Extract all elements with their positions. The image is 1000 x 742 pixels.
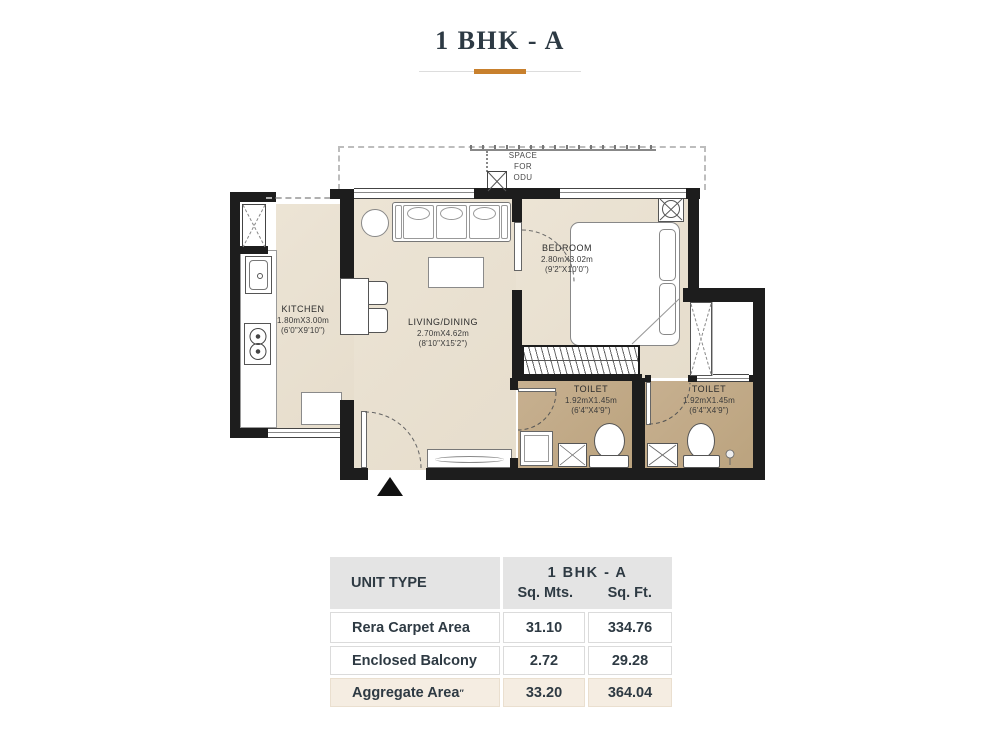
page-title: 1 BHK - A bbox=[0, 26, 1000, 56]
entry-arrow-marker bbox=[377, 477, 403, 496]
odu-label: SPACE FOR ODU bbox=[509, 151, 538, 183]
kitchen-dim-imperial: (6'0"X9'10") bbox=[277, 326, 329, 336]
living-dim-imperial: (8'10"X15'2") bbox=[408, 339, 478, 349]
living-name: LIVING/DINING bbox=[408, 317, 478, 329]
row-sqft-value: 364.04 bbox=[588, 678, 672, 707]
toilet2-dim-metric: 1.92mX1.45m bbox=[683, 396, 735, 406]
wall-segment bbox=[645, 375, 651, 382]
wall-segment bbox=[512, 196, 522, 222]
sofa-pillow bbox=[473, 207, 496, 220]
toilet2-basin bbox=[647, 443, 678, 467]
sofa-arm-right bbox=[501, 205, 508, 239]
wall-segment bbox=[230, 428, 270, 438]
sofa-cushion bbox=[403, 205, 434, 239]
row-label-text: Rera Carpet Area bbox=[352, 620, 470, 636]
toilet1-shower-tray bbox=[520, 431, 553, 466]
wall-segment bbox=[510, 378, 518, 390]
passage-wardrobe bbox=[690, 302, 712, 376]
tv-console bbox=[427, 449, 512, 468]
wall-segment bbox=[683, 288, 753, 302]
odu-railing bbox=[470, 145, 656, 151]
wall-segment bbox=[510, 458, 518, 470]
toilet2-wc bbox=[687, 423, 715, 459]
row-label-text: Aggregate Area bbox=[352, 685, 459, 701]
unit-type-header: UNIT TYPE bbox=[330, 557, 500, 609]
bed-pillow-1 bbox=[659, 229, 676, 281]
area-table: UNIT TYPE 1 BHK - A Sq. Mts. Sq. Ft. Rer… bbox=[330, 557, 672, 707]
living-window bbox=[354, 188, 474, 199]
wall-segment bbox=[426, 468, 765, 480]
row-sqmts-value: 33.20 bbox=[503, 678, 585, 707]
wall-segment bbox=[230, 192, 240, 438]
row-sqft-value: 29.28 bbox=[588, 646, 672, 675]
row-sqmts-value: 2.72 bbox=[503, 646, 585, 675]
toilet2-dim-imperial: (6'4"X4'9") bbox=[683, 406, 735, 416]
row-label: Aggregate Area″ bbox=[330, 678, 500, 707]
ac-unit-icon bbox=[658, 197, 684, 222]
sofa-arm-left bbox=[395, 205, 402, 239]
wall-segment bbox=[688, 189, 699, 302]
sofa bbox=[392, 202, 511, 242]
wall-segment bbox=[340, 189, 354, 278]
unit-subcolumns: Sq. Mts. Sq. Ft. bbox=[503, 585, 672, 601]
side-table bbox=[361, 209, 389, 237]
toilet2-name: TOILET bbox=[683, 384, 735, 396]
toilet2-label: TOILET 1.92mX1.45m (6'4"X4'9") bbox=[683, 384, 735, 416]
col-header-sqft: Sq. Ft. bbox=[588, 585, 673, 601]
dining-chair-2 bbox=[368, 308, 388, 333]
odu-railing-post bbox=[486, 151, 490, 172]
passage-divider-line bbox=[712, 302, 713, 376]
unit-name: 1 BHK - A bbox=[548, 565, 628, 581]
bedroom-window bbox=[560, 188, 686, 199]
odu-label-line2: FOR bbox=[509, 162, 538, 173]
wall-segment bbox=[340, 468, 368, 480]
toilet1-name: TOILET bbox=[565, 384, 617, 396]
floor-plan-page: 1 BHK - A SPACE FOR ODU bbox=[0, 0, 1000, 742]
entry-door-leaf bbox=[361, 411, 367, 468]
toilet1-dim-metric: 1.92mX1.45m bbox=[565, 396, 617, 406]
wall-segment bbox=[632, 378, 645, 470]
wall-segment bbox=[240, 246, 268, 254]
sofa-cushion bbox=[436, 205, 467, 239]
toilet1-door-leaf bbox=[518, 388, 556, 392]
kitchen-sink bbox=[245, 256, 272, 294]
living-label: LIVING/DINING 2.70mX4.62m (8'10"X15'2") bbox=[408, 317, 478, 349]
dining-chair-1 bbox=[368, 281, 388, 305]
odu-label-line1: SPACE bbox=[509, 151, 538, 162]
open-boundary-dashed bbox=[266, 197, 340, 199]
wall-segment bbox=[753, 288, 765, 480]
refrigerator bbox=[301, 392, 342, 425]
toilet1-label: TOILET 1.92mX1.45m (6'4"X4'9") bbox=[565, 384, 617, 416]
living-dim-metric: 2.70mX4.62m bbox=[408, 329, 478, 339]
toilet1-cistern bbox=[589, 455, 629, 468]
title-divider-accent bbox=[474, 69, 526, 74]
row-label: Enclosed Balcony bbox=[330, 646, 500, 675]
unit-name-header: 1 BHK - A Sq. Mts. Sq. Ft. bbox=[503, 557, 672, 609]
bedroom-dim-imperial: (9'2"X10'0") bbox=[541, 265, 593, 275]
toilet2-door-leaf bbox=[646, 382, 651, 425]
bedroom-dim-metric: 2.80mX3.02m bbox=[541, 255, 593, 265]
col-header-sqmts: Sq. Mts. bbox=[503, 585, 588, 601]
kitchen-label: KITCHEN 1.80mX3.00m (6'0"X9'10") bbox=[277, 304, 329, 336]
bed-pillow-2 bbox=[659, 283, 676, 335]
kitchen-stove bbox=[244, 323, 271, 365]
row-sqft-value: 334.76 bbox=[588, 612, 672, 643]
toilet1-basin bbox=[558, 443, 587, 467]
bedroom-door-leaf bbox=[514, 222, 522, 271]
row-label: Rera Carpet Area bbox=[330, 612, 500, 643]
bedroom-label: BEDROOM 2.80mX3.02m (9'2"X10'0") bbox=[541, 243, 593, 275]
row-label-text: Enclosed Balcony bbox=[352, 653, 477, 669]
bedroom-name: BEDROOM bbox=[541, 243, 593, 255]
dining-table bbox=[340, 278, 369, 335]
kitchen-name: KITCHEN bbox=[277, 304, 329, 316]
kitchen-window bbox=[268, 428, 340, 438]
sofa-pillow bbox=[407, 207, 430, 220]
toilet2-cistern bbox=[683, 455, 720, 468]
odu-label-line3: ODU bbox=[509, 173, 538, 184]
toilet1-wc bbox=[594, 423, 625, 459]
kitchen-dim-metric: 1.80mX3.00m bbox=[277, 316, 329, 326]
coffee-table bbox=[428, 257, 484, 288]
wall-segment bbox=[512, 290, 522, 378]
sofa-pillow bbox=[440, 207, 463, 220]
row-label-suffix: ″ bbox=[459, 688, 463, 698]
bedroom-wardrobe bbox=[522, 345, 640, 376]
sofa-cushion bbox=[469, 205, 500, 239]
toilet1-dim-imperial: (6'4"X4'9") bbox=[565, 406, 617, 416]
duct-shaft bbox=[242, 204, 266, 248]
row-sqmts-value: 31.10 bbox=[503, 612, 585, 643]
